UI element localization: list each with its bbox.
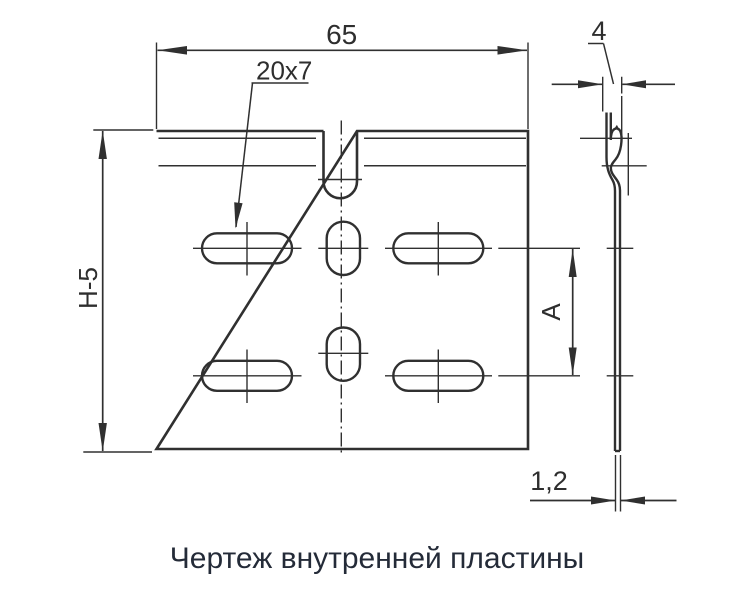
slots-row-1-centerlines bbox=[193, 222, 492, 276]
side-centerline-crosses bbox=[580, 96, 647, 376]
arrowhead bbox=[234, 202, 242, 228]
slots-row-2-centerlines bbox=[193, 350, 492, 404]
centerline bbox=[193, 350, 302, 404]
side-profile bbox=[607, 113, 622, 452]
arrowhead bbox=[569, 348, 577, 376]
dim-height-label: Н-5 bbox=[73, 267, 103, 309]
side-view bbox=[580, 96, 647, 451]
extension-lines bbox=[616, 455, 621, 512]
dim-thickness-label: 1,2 bbox=[530, 466, 568, 496]
drawing-caption: Чертеж внутренней пластины bbox=[170, 542, 584, 575]
slot-size-label: 20x7 bbox=[256, 56, 312, 86]
arrowhead bbox=[498, 46, 528, 55]
dim-width-label: 65 bbox=[326, 19, 357, 50]
dim-pitch-label: А bbox=[536, 303, 566, 321]
arrowhead bbox=[622, 80, 646, 88]
centerline bbox=[385, 350, 492, 404]
dim-width-65 bbox=[157, 43, 529, 130]
dim-depth-label: 4 bbox=[591, 16, 606, 46]
arrowhead bbox=[99, 423, 107, 452]
arrowhead bbox=[569, 249, 577, 277]
arrowhead bbox=[99, 131, 107, 160]
plate-rect bbox=[157, 131, 529, 449]
slot-size-leader bbox=[234, 83, 308, 229]
drawing-canvas: 65 Н-5 А 20x7 bbox=[0, 0, 753, 610]
bend-lines bbox=[159, 138, 527, 179]
centerline bbox=[193, 222, 302, 276]
arrowhead bbox=[591, 497, 616, 505]
technical-drawing: 65 Н-5 А 20x7 bbox=[0, 0, 753, 610]
extension-lines bbox=[157, 43, 529, 130]
slot-middle-vertical bbox=[327, 328, 360, 381]
centerline bbox=[385, 222, 492, 276]
arrowhead bbox=[578, 80, 603, 88]
arrowhead bbox=[621, 497, 646, 505]
front-view bbox=[157, 121, 529, 456]
slots-row-2 bbox=[202, 328, 483, 391]
dim-depth-4 bbox=[552, 44, 675, 112]
extension-lines bbox=[603, 77, 622, 112]
arrowhead bbox=[158, 46, 188, 55]
plate-outline bbox=[157, 131, 529, 449]
leader-line bbox=[604, 44, 614, 85]
